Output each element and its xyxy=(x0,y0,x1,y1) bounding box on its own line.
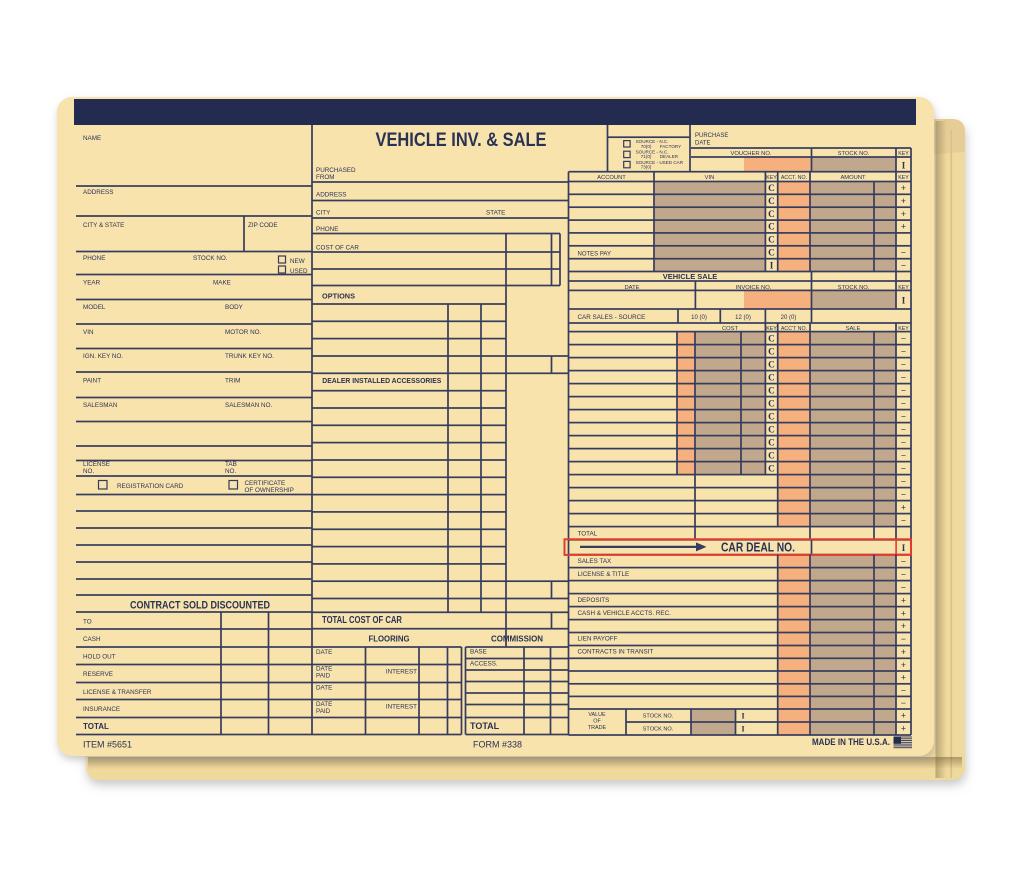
svg-text:I: I xyxy=(742,725,745,734)
svg-text:+: + xyxy=(901,196,906,206)
svg-text:+: + xyxy=(901,711,906,721)
svg-text:SALESMAN NO.: SALESMAN NO. xyxy=(225,402,272,409)
svg-text:CITY: CITY xyxy=(316,210,331,217)
svg-text:TO: TO xyxy=(83,619,92,626)
svg-text:LICENSE & TITLE: LICENSE & TITLE xyxy=(578,571,630,578)
svg-text:I: I xyxy=(742,712,745,721)
svg-text:−: − xyxy=(901,463,906,473)
svg-text:PAID: PAID xyxy=(316,673,331,680)
svg-text:−: − xyxy=(901,685,906,695)
svg-text:SALES TAX: SALES TAX xyxy=(578,558,613,565)
svg-text:NO.: NO. xyxy=(83,468,94,475)
svg-text:VIN: VIN xyxy=(705,175,715,181)
svg-text:−: − xyxy=(901,515,906,525)
svg-text:COMMISSION: COMMISSION xyxy=(491,634,543,644)
svg-text:STOCK NO.: STOCK NO. xyxy=(193,255,228,262)
svg-text:73(0): 73(0) xyxy=(641,165,652,170)
svg-text:12 (0): 12 (0) xyxy=(735,315,751,321)
svg-text:DATE: DATE xyxy=(316,701,332,708)
svg-text:−: − xyxy=(901,634,906,644)
svg-text:+: + xyxy=(901,209,906,219)
svg-text:FACTORY: FACTORY xyxy=(660,144,682,149)
svg-text:MAKE: MAKE xyxy=(213,280,231,287)
svg-text:STOCK NO.: STOCK NO. xyxy=(643,727,674,733)
svg-text:+: + xyxy=(901,183,906,193)
svg-text:DATE: DATE xyxy=(316,685,332,692)
svg-text:+: + xyxy=(901,621,906,631)
svg-text:TRADE: TRADE xyxy=(588,725,607,731)
svg-text:PAID: PAID xyxy=(316,708,331,715)
svg-text:DATE: DATE xyxy=(316,649,332,656)
svg-text:C: C xyxy=(768,209,775,219)
svg-text:C: C xyxy=(768,437,775,447)
svg-text:C: C xyxy=(768,247,775,257)
svg-text:INTEREST: INTEREST xyxy=(386,704,417,711)
svg-text:NOTES PAY: NOTES PAY xyxy=(578,252,611,258)
svg-text:−: − xyxy=(901,247,906,257)
svg-text:−: − xyxy=(901,346,906,356)
svg-text:PHONE: PHONE xyxy=(316,226,338,233)
svg-text:INSURANCE: INSURANCE xyxy=(83,706,120,713)
svg-text:FORM #338: FORM #338 xyxy=(473,740,522,750)
svg-text:AMOUNT: AMOUNT xyxy=(840,175,866,181)
svg-text:REGISTRATION CARD: REGISTRATION CARD xyxy=(117,483,184,490)
svg-text:TOTAL COST OF CAR: TOTAL COST OF CAR xyxy=(322,615,403,626)
svg-text:ITEM #5651: ITEM #5651 xyxy=(83,740,132,750)
svg-text:I: I xyxy=(902,161,906,171)
svg-text:INTEREST: INTEREST xyxy=(386,669,417,676)
svg-text:TOTAL: TOTAL xyxy=(83,722,109,731)
svg-text:CITY & STATE: CITY & STATE xyxy=(83,222,124,229)
svg-text:−: − xyxy=(901,437,906,447)
svg-text:MOTOR NO.: MOTOR NO. xyxy=(225,329,262,336)
svg-text:+: + xyxy=(901,595,906,605)
svg-text:I: I xyxy=(902,543,906,553)
svg-text:VALUE: VALUE xyxy=(588,712,606,718)
svg-text:YEAR: YEAR xyxy=(83,280,101,287)
svg-text:−: − xyxy=(901,411,906,421)
svg-text:+: + xyxy=(901,660,906,670)
svg-text:BODY: BODY xyxy=(225,304,244,311)
svg-text:−: − xyxy=(901,333,906,343)
svg-text:KEY: KEY xyxy=(766,175,777,181)
svg-text:STOCK NO.: STOCK NO. xyxy=(643,714,674,720)
svg-text:−: − xyxy=(901,698,906,708)
svg-text:C: C xyxy=(768,346,775,356)
svg-text:C: C xyxy=(768,450,775,460)
svg-text:C: C xyxy=(768,333,775,343)
svg-text:C: C xyxy=(768,359,775,369)
svg-text:C: C xyxy=(768,222,775,232)
svg-text:+: + xyxy=(901,608,906,618)
svg-text:ACCOUNT: ACCOUNT xyxy=(597,175,626,181)
svg-text:+: + xyxy=(901,724,906,734)
svg-text:−: − xyxy=(901,569,906,579)
svg-text:C: C xyxy=(768,424,775,434)
svg-text:MODEL: MODEL xyxy=(83,304,106,311)
svg-text:+: + xyxy=(901,673,906,683)
svg-text:TOTAL: TOTAL xyxy=(578,531,598,538)
svg-text:KEY: KEY xyxy=(898,151,909,157)
svg-text:71(0): 71(0) xyxy=(641,154,652,159)
svg-text:+: + xyxy=(901,222,906,232)
svg-text:−: − xyxy=(901,556,906,566)
svg-text:HOLD OUT: HOLD OUT xyxy=(83,654,116,661)
svg-text:20 (0): 20 (0) xyxy=(781,315,797,321)
svg-text:VOUCHER NO.: VOUCHER NO. xyxy=(731,151,772,157)
svg-text:NO.: NO. xyxy=(225,468,236,475)
svg-text:−: − xyxy=(901,489,906,499)
svg-text:PURCHASE: PURCHASE xyxy=(695,133,728,139)
svg-text:LIEN PAYOFF: LIEN PAYOFF xyxy=(578,636,618,643)
svg-text:PHONE: PHONE xyxy=(83,255,105,262)
svg-text:70(0): 70(0) xyxy=(641,144,652,149)
svg-text:LICENSE & TRANSFER: LICENSE & TRANSFER xyxy=(83,689,152,696)
svg-text:LICENSE: LICENSE xyxy=(83,461,110,468)
svg-text:TOTAL: TOTAL xyxy=(470,721,500,731)
svg-text:VEHICLE INV. & SALE: VEHICLE INV. & SALE xyxy=(376,129,547,151)
svg-text:ZIP CODE: ZIP CODE xyxy=(248,222,278,229)
svg-text:DATE: DATE xyxy=(695,140,711,146)
svg-text:−: − xyxy=(901,385,906,395)
svg-text:DEPOSITS: DEPOSITS xyxy=(578,597,610,604)
svg-text:−: − xyxy=(901,398,906,408)
svg-text:ADDRESS: ADDRESS xyxy=(83,189,113,196)
svg-text:C: C xyxy=(768,235,775,245)
svg-text:DEALER INSTALLED ACCESSORIES: DEALER INSTALLED ACCESSORIES xyxy=(322,376,441,385)
svg-text:−: − xyxy=(901,260,906,270)
svg-text:−: − xyxy=(901,450,906,460)
svg-text:SALESMAN: SALESMAN xyxy=(83,402,118,409)
svg-text:I: I xyxy=(902,296,906,306)
svg-text:C: C xyxy=(768,398,775,408)
svg-text:COST OF CAR: COST OF CAR xyxy=(316,245,359,252)
svg-text:OPTIONS: OPTIONS xyxy=(322,292,355,301)
svg-text:CONTRACTS IN TRANSIT: CONTRACTS IN TRANSIT xyxy=(578,649,654,656)
svg-text:C: C xyxy=(768,411,775,421)
svg-text:NEW: NEW xyxy=(290,258,305,265)
svg-text:−: − xyxy=(901,372,906,382)
svg-text:TAB: TAB xyxy=(225,461,237,468)
svg-text:CONTRACT SOLD DISCOUNTED: CONTRACT SOLD DISCOUNTED xyxy=(130,600,270,612)
svg-text:USED: USED xyxy=(290,268,308,275)
svg-text:FROM: FROM xyxy=(316,174,335,181)
svg-text:TRUNK KEY NO.: TRUNK KEY NO. xyxy=(225,353,274,360)
svg-text:C: C xyxy=(768,196,775,206)
svg-text:CAR DEAL NO.: CAR DEAL NO. xyxy=(721,539,795,554)
svg-text:CASH: CASH xyxy=(83,636,101,643)
svg-text:BASE: BASE xyxy=(470,649,487,656)
svg-text:STATE: STATE xyxy=(486,210,505,217)
svg-text:DATE: DATE xyxy=(316,666,332,673)
svg-text:KEY: KEY xyxy=(898,175,909,181)
svg-text:ACCESS.: ACCESS. xyxy=(470,661,498,668)
svg-text:ADDRESS: ADDRESS xyxy=(316,192,346,199)
svg-text:C: C xyxy=(768,372,775,382)
svg-text:−: − xyxy=(901,359,906,369)
svg-text:+: + xyxy=(901,502,906,512)
svg-text:NAME: NAME xyxy=(83,135,101,142)
svg-text:C: C xyxy=(768,183,775,193)
svg-text:I: I xyxy=(770,260,774,270)
svg-text:DEALER: DEALER xyxy=(660,154,679,159)
svg-text:STOCK NO.: STOCK NO. xyxy=(838,151,870,157)
svg-text:C: C xyxy=(768,385,775,395)
svg-text:PURCHASED: PURCHASED xyxy=(316,167,356,174)
svg-text:FLOORING: FLOORING xyxy=(369,634,410,644)
svg-text:PAINT: PAINT xyxy=(83,378,101,385)
svg-text:MADE IN THE U.S.A.: MADE IN THE U.S.A. xyxy=(812,737,890,748)
svg-text:CASH & VEHICLE ACCTS. REC.: CASH & VEHICLE ACCTS. REC. xyxy=(578,610,672,617)
svg-text:OF: OF xyxy=(593,719,601,725)
svg-text:TRIM: TRIM xyxy=(225,378,240,385)
svg-text:+: + xyxy=(901,647,906,657)
svg-text:ACCT. NO.: ACCT. NO. xyxy=(781,175,807,181)
svg-text:OF OWNERSHIP: OF OWNERSHIP xyxy=(245,487,294,494)
svg-text:RESERVE: RESERVE xyxy=(83,671,113,678)
svg-text:−: − xyxy=(901,582,906,592)
svg-text:IGN. KEY NO.: IGN. KEY NO. xyxy=(83,353,123,360)
svg-text:C: C xyxy=(768,463,775,473)
svg-text:−: − xyxy=(901,424,906,434)
svg-text:10 (0): 10 (0) xyxy=(691,315,707,321)
svg-text:VIN: VIN xyxy=(83,329,94,336)
svg-text:−: − xyxy=(901,476,906,486)
svg-text:VEHICLE SALE: VEHICLE SALE xyxy=(663,272,718,281)
svg-text:CAR SALES - SOURCE: CAR SALES - SOURCE xyxy=(578,314,646,321)
